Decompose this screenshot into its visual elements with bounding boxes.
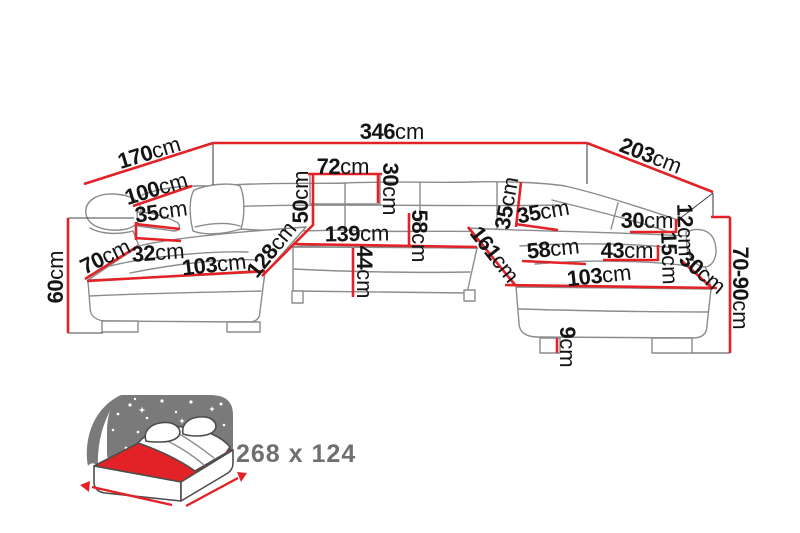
dim-corner-cushion: 35cm xyxy=(515,195,571,229)
dim-seat-depth: 58cm xyxy=(407,210,432,263)
sofa-dimension-diagram: 346cm 170cm 203cm 60cm 70-90cm 100cm 35c… xyxy=(0,0,800,533)
diagram-canvas: 346cm 170cm 203cm 60cm 70-90cm 100cm 35c… xyxy=(0,0,800,533)
dim-right-side: 203cm xyxy=(616,132,685,178)
dim-left-height: 60cm xyxy=(43,251,68,304)
dim-ledge-right: 15cm xyxy=(656,231,683,285)
dim-left-side: 170cm xyxy=(115,131,184,174)
dim-headrest-width: 72cm xyxy=(317,154,370,179)
dim-headrest-height: 30cm xyxy=(378,163,403,216)
dim-arm-width: 32cm xyxy=(131,238,185,267)
bed-icon: 268 x 124 xyxy=(80,395,356,506)
dim-seat-height: 44cm xyxy=(352,246,377,299)
dim-middle-width: 139cm xyxy=(325,220,390,246)
dim-back-width: 346cm xyxy=(360,119,425,144)
dim-backrest-right: 30cm xyxy=(621,208,674,233)
dim-backrest-height: 50cm xyxy=(288,171,313,224)
dim-right-height: 70-90cm xyxy=(728,246,753,329)
dim-leg-height: 9cm xyxy=(555,326,580,367)
bed-size-label: 268 x 124 xyxy=(236,440,356,468)
